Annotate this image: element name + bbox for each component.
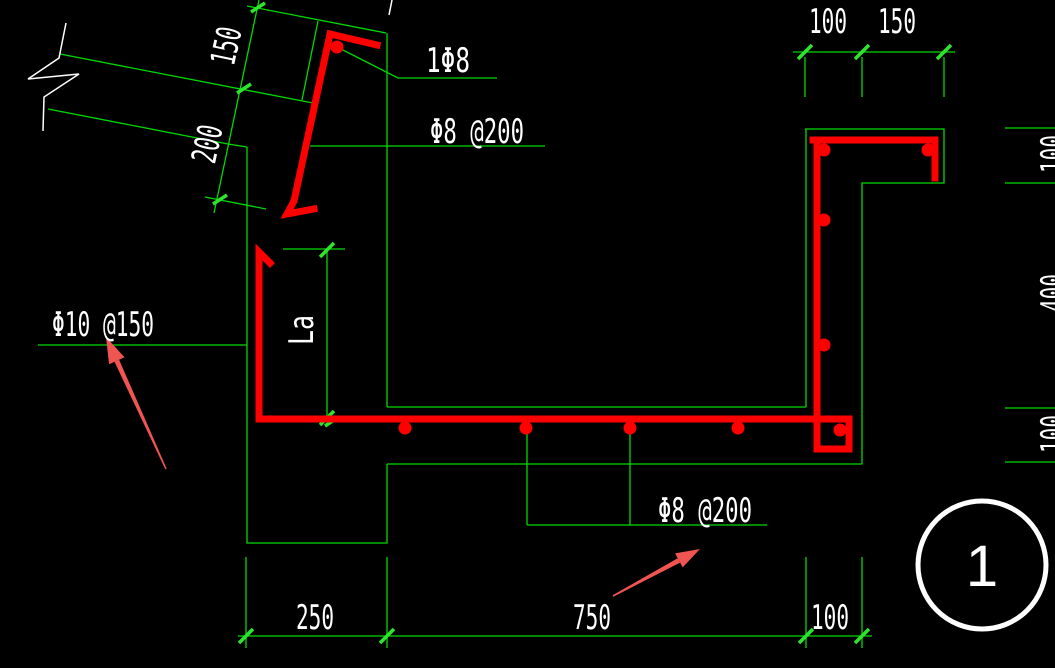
cut-line-stub [389,0,392,15]
leader-lines [38,47,767,525]
rebar-parapet-top-bar [813,140,935,178]
callout-arrow-left [106,337,167,469]
dim-top-150: 150 [878,2,916,42]
cad-drawing-canvas: 1 100 150 250 750 100 150 200 100 400 10… [0,0,1055,668]
detail-number: 1 [966,534,998,599]
label-slab-distribution-phi8: Φ8 @200 [658,491,752,531]
label-corner-bar-1phi8: 1Φ8 [426,41,470,81]
bar-section-dot [331,41,344,54]
dim-bottom-250: 250 [296,598,334,638]
dim-bottom-100: 100 [811,598,849,638]
rebar-section-dots [331,41,935,437]
bar-section-dot [922,144,935,157]
bar-section-dot [520,422,533,435]
dim-right-400: 400 [1034,274,1055,312]
bar-section-dot [624,422,637,435]
wall-slab-outline [247,33,944,543]
dim-right-100b: 100 [1034,415,1055,453]
break-line-icon [28,23,79,131]
rebar-slab-main-bar [259,252,849,449]
dimension-tick-marks [213,3,951,643]
dim-bottom-750: 750 [573,598,611,638]
arrow-shaft [115,360,167,470]
dim-slope-200: 200 [184,121,231,166]
callout-arrow-bottom [613,549,700,597]
label-slope-distribution-phi8: Φ8 @200 [430,112,524,152]
bar-section-dot [818,339,831,352]
bar-section-dot [818,144,831,157]
label-main-bar-phi10: Φ10 @150 [52,305,154,345]
bar-section-dot [732,422,745,435]
dim-top-100: 100 [809,2,847,42]
label-anchorage-la: La [282,315,322,345]
bar-section-dot [818,214,831,227]
arrow-head-icon [675,549,700,567]
cad-drawing: 1 100 150 250 750 100 150 200 100 400 10… [0,0,1055,668]
bar-section-dot [834,424,847,437]
bar-section-dot [399,422,412,435]
dim-right-100a: 100 [1034,135,1055,173]
dim-slope-150: 150 [203,23,250,68]
arrow-shaft [613,558,681,597]
